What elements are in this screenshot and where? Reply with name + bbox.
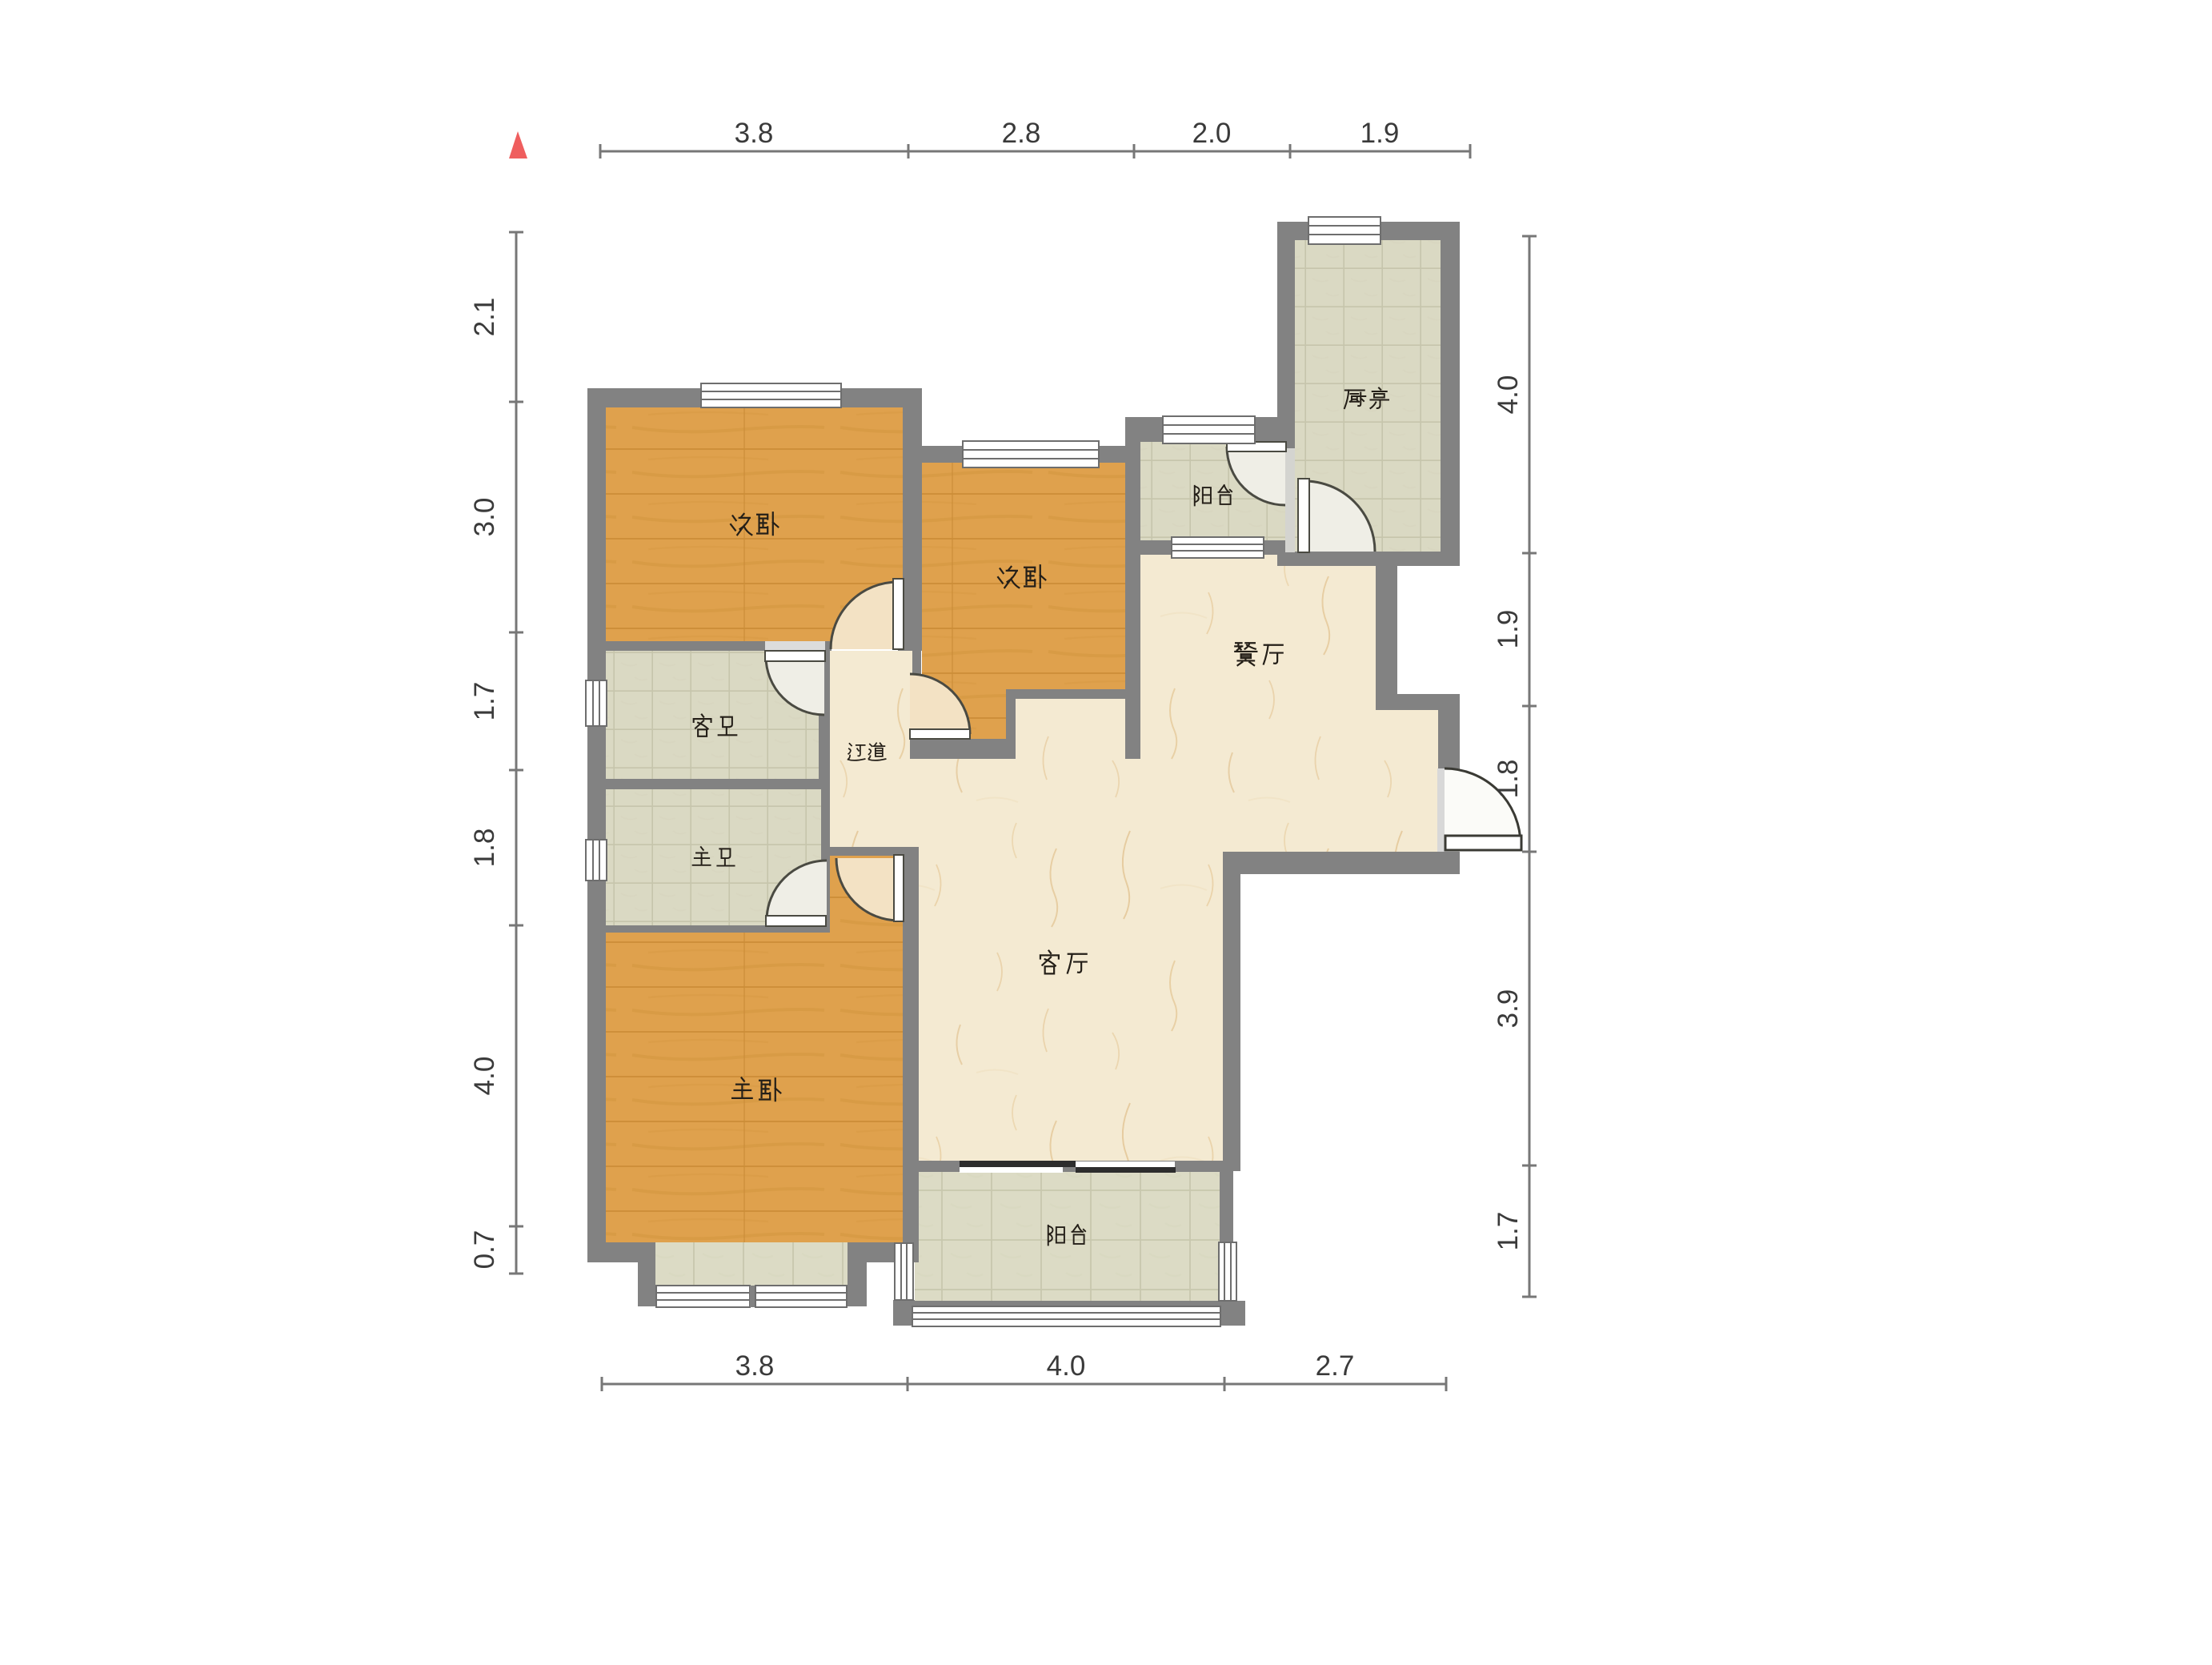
svg-text:1.9: 1.9 [1493,610,1524,649]
svg-text:2.7: 2.7 [1316,1350,1355,1382]
svg-text:4.0: 4.0 [1047,1350,1086,1382]
svg-text:3.9: 3.9 [1493,989,1524,1029]
svg-text:2.1: 2.1 [469,298,500,337]
svg-text:1.7: 1.7 [1493,1212,1524,1251]
svg-text:4.0: 4.0 [469,1057,500,1096]
svg-text:1.7: 1.7 [469,682,500,721]
svg-text:0.7: 0.7 [469,1230,500,1270]
svg-text:2.0: 2.0 [1192,118,1232,149]
svg-text:2.8: 2.8 [1002,118,1041,149]
svg-text:3.8: 3.8 [735,1350,775,1382]
svg-text:1.8: 1.8 [1493,760,1524,799]
svg-text:1.8: 1.8 [469,828,500,868]
svg-text:1.9: 1.9 [1360,118,1400,149]
svg-text:4.0: 4.0 [1493,375,1524,415]
svg-text:3.0: 3.0 [469,498,500,537]
svg-text:3.8: 3.8 [735,118,774,149]
